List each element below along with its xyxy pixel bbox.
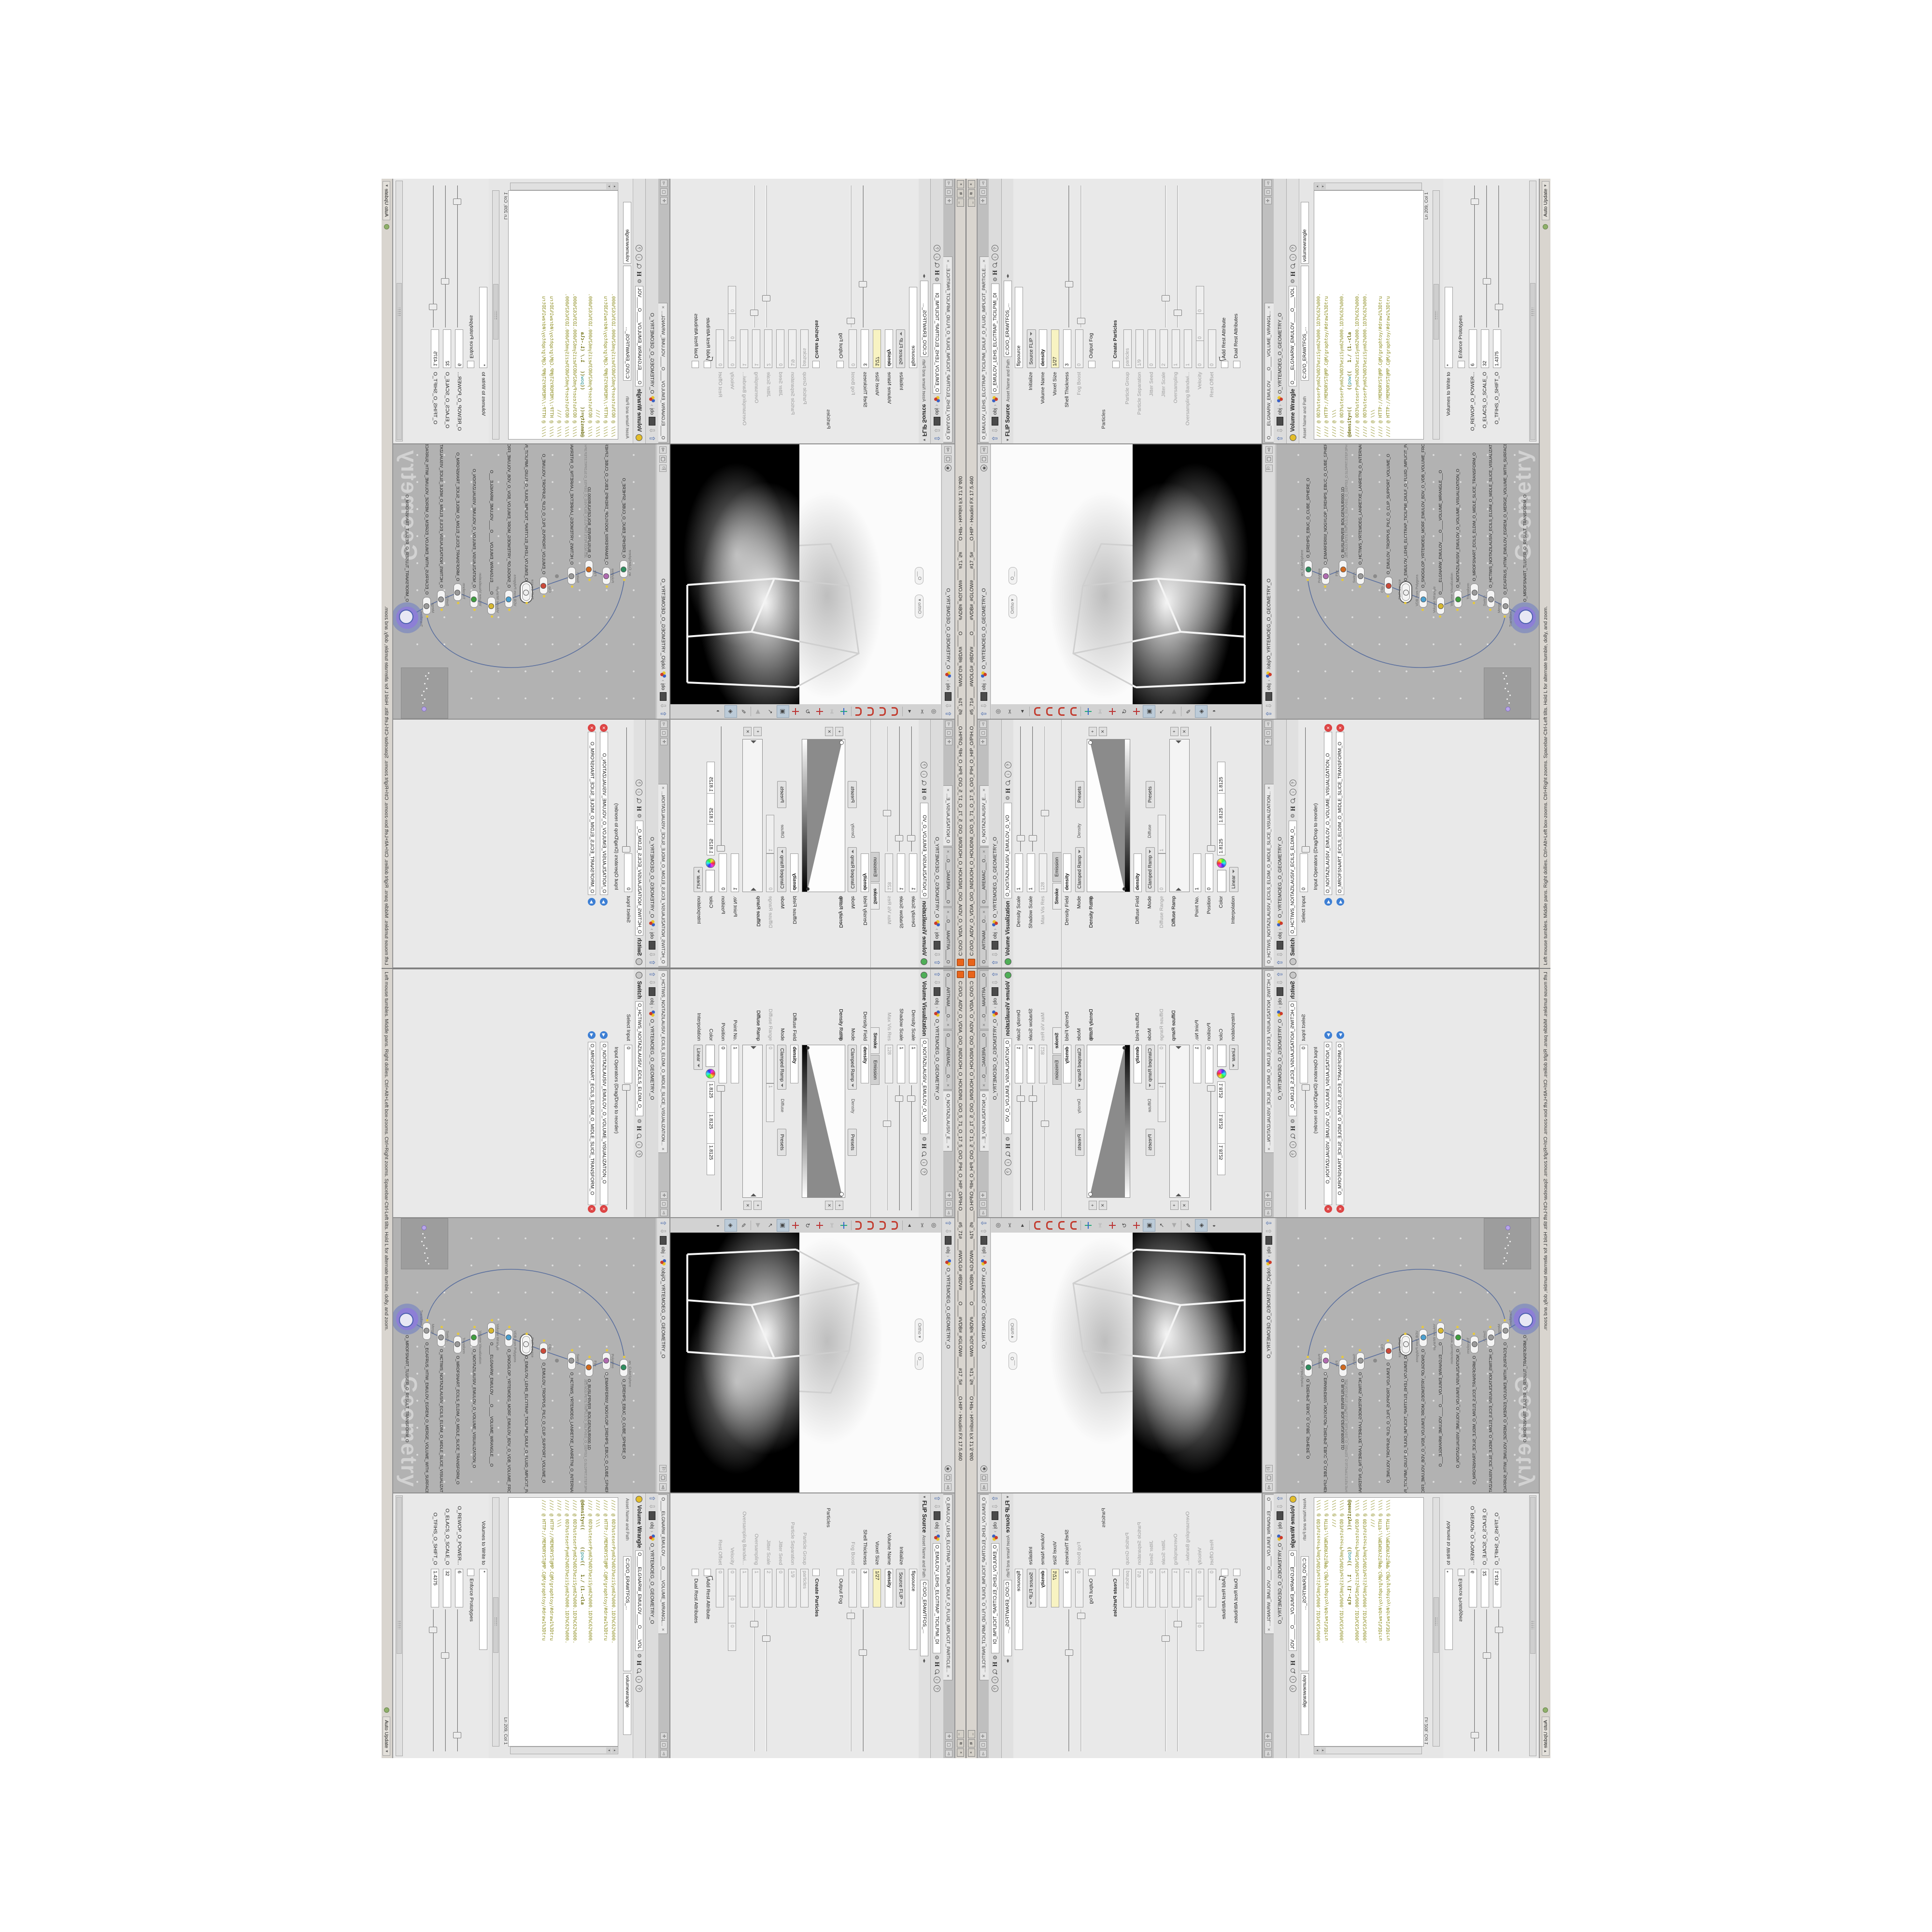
snap-edge-magnet-icon[interactable] [865, 1220, 877, 1231]
pane-type-icon[interactable] [934, 987, 940, 996]
scissors-icon[interactable]: ✄ [826, 706, 838, 717]
pane-maximize-icon[interactable]: ▢ [945, 1474, 952, 1481]
ramp-widget[interactable] [802, 739, 845, 892]
ramp-widget[interactable] [1169, 739, 1190, 892]
breadcrumb-root[interactable]: obj [649, 408, 655, 415]
tab-close-icon[interactable]: ✕ [980, 850, 989, 853]
param-value-field[interactable]: 0 [728, 286, 736, 314]
param-value-field[interactable]: 1 [909, 853, 917, 892]
param-checkbox[interactable] [1233, 361, 1240, 368]
param-value-field[interactable]: 1 [1027, 1045, 1035, 1083]
remove-input-icon[interactable]: ✕ [1324, 1205, 1332, 1213]
color-wheel-icon[interactable] [706, 858, 715, 868]
pane-tab[interactable]: O_NOITAZILAUSIV_E...✕ [943, 1091, 952, 1151]
param-value-field[interactable]: 1 [1193, 853, 1201, 892]
param-menu[interactable]: Linear [694, 867, 703, 892]
info-icon[interactable]: i [636, 1676, 643, 1683]
breadcrumb-root[interactable]: obj [1266, 683, 1272, 690]
minimize-button[interactable]: _ [968, 1730, 975, 1738]
pane-type-icon[interactable] [934, 417, 940, 426]
info-icon[interactable]: i [636, 1141, 643, 1148]
param-checkbox[interactable] [1221, 361, 1228, 368]
param-checkbox[interactable] [692, 361, 699, 368]
network-node[interactable]: Volume WrangleO____ELGNARW_EMULOV____O__… [1436, 597, 1445, 614]
ramp-key-start[interactable] [751, 885, 756, 891]
network-node[interactable]: VDB from PolygonsO_SNOGILOP_YRTEMOEG_MOR… [505, 1329, 513, 1347]
network-node[interactable]: ClipO_EMULOV_TROPPUS_PILC_O_CLIP_SUPPORT… [540, 1343, 548, 1360]
param-slider[interactable] [1165, 1609, 1166, 1751]
param-value-field[interactable]: 1.4375 [1493, 329, 1501, 368]
pane-collapse-icon[interactable]: ◅ [945, 1750, 952, 1757]
param-value-field[interactable]: density [1063, 853, 1071, 892]
pane-maximize-icon[interactable]: ▢ [1264, 188, 1272, 196]
snap-magnet-icon[interactable] [1031, 706, 1043, 717]
param-value-field[interactable]: 0 [728, 1623, 736, 1651]
help-icon[interactable]: ? [1005, 1168, 1011, 1175]
network-node[interactable]: an_CubeSphereO_EREHPS_EBUC_O_CUBE_SPHERE… [1304, 1359, 1312, 1377]
gear-icon[interactable]: ⚙ [1290, 813, 1296, 818]
param-slider[interactable] [1068, 1609, 1070, 1751]
nav-down-icon[interactable]: ⇩ [980, 703, 988, 709]
color-component-field[interactable]: 1.8125 [1217, 1112, 1225, 1144]
search-icon[interactable] [1005, 1151, 1011, 1157]
param-value-field[interactable]: 0 [1148, 1569, 1156, 1607]
pane-tab[interactable]: O____ELGNARW_EMULOV____O____VOLUME_WRANG… [658, 303, 668, 442]
nav-up-icon[interactable]: ⇧ [934, 971, 941, 978]
nav-up-icon[interactable]: ⇧ [1277, 971, 1284, 978]
pane-tab[interactable]: O____ARTNAM___O...✕ [943, 908, 952, 966]
network-node[interactable]: Volume VisualizationO_NOITAZILAUSIV_EMUL… [470, 1329, 478, 1347]
slider-knob[interactable] [1483, 278, 1491, 284]
breadcrumb-path[interactable]: O_YRTEMOEG_O_GEOMETRY_O [1277, 1019, 1283, 1100]
display-diamond-icon[interactable]: ◈ [1195, 1219, 1207, 1232]
pane-collapse-icon[interactable]: ◅ [980, 1209, 987, 1216]
ramp-add-icon[interactable]: + [1089, 727, 1097, 736]
ramp-key-start[interactable] [806, 887, 810, 891]
ramp-key-end[interactable] [1176, 1191, 1181, 1196]
select-arrow-icon[interactable]: ↖ [765, 1220, 776, 1231]
presets-button[interactable]: Presets [1146, 781, 1155, 808]
brush-icon[interactable]: ✎ [738, 706, 749, 717]
tab-close-icon[interactable]: ✕ [658, 1148, 667, 1151]
slider-knob[interactable] [1207, 845, 1215, 852]
snap-point-magnet-icon[interactable] [877, 706, 889, 717]
param-value-field[interactable]: 1 [731, 1045, 739, 1083]
param-value-field[interactable]: 3 [861, 329, 869, 368]
param-value-field[interactable]: 6 [455, 1569, 463, 1607]
snap-point-magnet-icon[interactable] [877, 1220, 889, 1231]
remove-input-icon[interactable]: ✕ [1336, 724, 1344, 732]
param-checkbox[interactable] [1458, 1569, 1465, 1576]
nav-down-icon[interactable]: ⇩ [992, 980, 999, 986]
param-slider[interactable] [910, 1085, 912, 1210]
reorder-arrow-icon[interactable]: ▶ [1324, 898, 1332, 906]
vex-code-editor[interactable]: //// @ 0D3%steserPym62%0D3%eziSym62%000.… [1314, 190, 1424, 440]
nav-down-icon[interactable]: ⇩ [992, 952, 999, 958]
nav-up-icon[interactable]: ⇧ [934, 435, 941, 441]
pane-maximize-icon[interactable]: ▢ [660, 729, 668, 737]
param-value-field[interactable]: density [861, 1045, 869, 1083]
param-value-field[interactable]: 1 [740, 329, 748, 368]
nav-up-icon[interactable]: ⇧ [980, 710, 988, 717]
snap-magnet-icon[interactable] [1031, 1220, 1043, 1231]
network-node[interactable]: Volume VisualizationO_NOITAZILAUSIV_EMUL… [470, 590, 478, 608]
slider-knob[interactable] [717, 845, 725, 852]
network-node[interactable]: ClipO_EMULOV_TROPPUS_PILC_O_CLIP_SUPPORT… [1384, 577, 1392, 594]
select-arrow-icon[interactable]: ↖ [1156, 706, 1167, 717]
breadcrumb-root[interactable]: obj [981, 683, 987, 690]
color-component-field[interactable]: 1.8125 [1217, 1143, 1225, 1175]
node-path-field[interactable]: O_EMULOV_LEHS_ELCITRAP_TICILPMI_DI [991, 284, 999, 394]
param-slider[interactable] [753, 1609, 755, 1751]
search-icon[interactable] [637, 1133, 642, 1139]
param-value-field[interactable]: 1 [1172, 1569, 1180, 1607]
nav-down-icon[interactable]: ⇩ [649, 980, 656, 986]
presets-button[interactable]: Presets [848, 1129, 857, 1156]
pane-split-icon[interactable]: ✛ [980, 1192, 987, 1199]
slider-knob[interactable] [750, 310, 758, 316]
param-value-field[interactable]: * [479, 287, 487, 368]
subtab-emission[interactable]: Emission [1052, 852, 1061, 882]
subtab-smoke[interactable]: Smoke [871, 1027, 880, 1054]
pane-collapse-icon[interactable]: ◅ [1264, 1209, 1272, 1216]
tab-close-icon[interactable]: ✕ [980, 788, 989, 792]
breadcrumb-path[interactable]: O_YRTEMOEG_O_GEOMETRY_O [992, 1019, 998, 1100]
param-value-field[interactable]: 0 [776, 1569, 784, 1607]
pane-collapse-icon[interactable]: ◅ [1264, 1750, 1272, 1757]
param-value-field[interactable]: 0 [1205, 1045, 1213, 1083]
node-name-field[interactable]: O____ELGNARW_EMULOV____O____VOL [1289, 1550, 1297, 1651]
slider-knob[interactable] [1162, 295, 1170, 301]
asset-path-field[interactable]: C:/O/O_ERAWTFOS_... [1004, 281, 1012, 357]
nav-down-icon[interactable]: ⇩ [980, 1228, 988, 1235]
gear-icon[interactable]: ⚙ [992, 277, 998, 282]
param-menu[interactable]: Clamped Ramp [777, 847, 786, 892]
nav-down-icon[interactable]: ⇩ [945, 703, 952, 709]
nav-up-icon[interactable]: ⇧ [649, 971, 656, 978]
ramp-mode-icons[interactable]: ▽⊞ [1088, 894, 1094, 907]
ramp-add-icon[interactable]: + [753, 1201, 762, 1210]
asset-path-field[interactable]: C:/O/O_ERAWTFOS_... [623, 1556, 631, 1671]
rotate-tool-icon[interactable]: ↻ [1119, 1220, 1130, 1231]
update-mode-selector[interactable]: Auto Update ▾ [1542, 1717, 1549, 1756]
tab-close-icon[interactable]: ✕ [1265, 1628, 1274, 1631]
breadcrumb-root[interactable]: obj [992, 998, 998, 1005]
param-value-field[interactable]: 0 [1158, 853, 1166, 892]
param-slider[interactable] [456, 1609, 458, 1751]
snap-edge-magnet-icon[interactable] [1055, 1220, 1067, 1231]
node-name-field[interactable]: O____ELGNARW_EMULOV____O____VOL [635, 1550, 643, 1651]
gear-icon[interactable]: ⚙ [636, 1119, 642, 1123]
param-value-field[interactable]: flipsource [909, 287, 917, 368]
asset-path-field[interactable]: C:/O/O_ERAWTFOS_... [1004, 1580, 1012, 1656]
param-slider[interactable] [886, 726, 888, 852]
axis-jack-icon[interactable] [1082, 1220, 1094, 1231]
pane-split-icon[interactable]: ✛ [980, 738, 987, 745]
param-menu[interactable]: Source FLIP [896, 1569, 905, 1607]
param-slider[interactable] [1080, 1609, 1082, 1751]
pan-hand-icon[interactable]: ✂ [916, 1220, 928, 1231]
slider-knob[interactable] [1302, 846, 1310, 852]
rotate-tool-icon[interactable]: ↻ [802, 1220, 813, 1231]
snap-grid-magnet-icon[interactable] [1067, 706, 1079, 717]
slider-knob[interactable] [859, 1649, 867, 1656]
breadcrumb-path[interactable]: O_YRTEMOEG_O_GEOMETRY_O [1277, 313, 1283, 394]
param-value-field[interactable]: 0 [1196, 1623, 1204, 1651]
param-value-field[interactable]: 0 [1196, 286, 1204, 314]
slider-knob[interactable] [762, 295, 770, 301]
pane-collapse-icon[interactable]: ◅ [945, 446, 952, 454]
tab-close-icon[interactable]: ✕ [943, 1023, 952, 1027]
param-slider[interactable] [850, 1609, 852, 1751]
param-value-field[interactable]: 1 [731, 853, 739, 892]
pane-split-icon[interactable]: ✛ [660, 1192, 668, 1199]
param-value-field[interactable]: 0 [719, 1045, 727, 1083]
slider-knob[interactable] [883, 810, 891, 816]
param-slider[interactable] [444, 1609, 446, 1751]
node-path-field[interactable]: O_EMULOV_LEHS_ELCITRAP_TICILPMI_DI [933, 284, 941, 394]
slider-knob[interactable] [1065, 1649, 1073, 1656]
param-value-field[interactable]: 1 [1193, 1045, 1201, 1083]
param-value-field[interactable]: 0 [1148, 329, 1156, 368]
pane-maximize-icon[interactable]: ▢ [945, 188, 952, 196]
param-value-field[interactable]: 1 [1015, 853, 1023, 892]
param-slider[interactable] [625, 727, 627, 852]
collapse-arrow-icon[interactable]: ◂ [904, 706, 916, 717]
pan-hand-icon[interactable]: ✂ [916, 706, 928, 717]
network-canvas[interactable]: Geometry an_CubeSphereO_EREHPS_EBUC_O_CU… [393, 1218, 656, 1492]
move-tool-icon[interactable] [1107, 706, 1118, 717]
pane-type-icon[interactable] [660, 1236, 667, 1245]
shade-sphere-icon[interactable]: ◑ [712, 706, 724, 717]
node-path-field[interactable]: O_EMULOV_LEHS_ELCITRAP_TICILPMI_DI [991, 1543, 999, 1653]
ramp-key-end[interactable] [1088, 740, 1093, 745]
play-icon[interactable]: ▶ [753, 706, 764, 717]
param-menu[interactable]: Linear [1229, 867, 1238, 892]
param-value-field[interactable]: 6 [455, 329, 463, 368]
nav-up-icon[interactable]: ⇧ [660, 710, 667, 717]
breadcrumb-root[interactable]: obj [934, 932, 940, 939]
network-node[interactable]: SwitchO_HCTIWS_YRTEMOEG_LANRETXE_LANRETN… [1356, 1352, 1364, 1370]
breadcrumb-root[interactable]: obj [981, 1247, 987, 1253]
play-icon[interactable]: ▶ [1168, 706, 1179, 717]
tab-close-icon[interactable]: ✕ [943, 910, 952, 914]
param-checkbox[interactable] [704, 361, 711, 368]
camera-target-icon[interactable]: ◉ [980, 1465, 987, 1472]
slider-knob[interactable] [1302, 1084, 1310, 1091]
network-path[interactable]: /obj/O_YRTEMOEG_O_GEOMETRY_O [1266, 1268, 1272, 1359]
breadcrumb-path[interactable]: O_YRTEMOEG_O_GEOMETRY_O [649, 837, 655, 918]
nav-down-icon[interactable]: ⇩ [934, 952, 941, 958]
help-icon[interactable]: ? [636, 1151, 643, 1157]
presets-button[interactable]: Presets [777, 1129, 786, 1156]
pane-hscrollbar[interactable] [396, 181, 403, 441]
param-value-field[interactable]: 1 [752, 1569, 760, 1607]
network-node[interactable]: FileO_BUSLPRVER_BOLGENJUR000.1DJE0.NO3.P… [1339, 560, 1347, 578]
nav-up-icon[interactable]: ⇧ [945, 710, 952, 717]
param-menu[interactable]: Source FLIP [1027, 1569, 1036, 1607]
param-value-field[interactable]: 0 [1196, 340, 1204, 368]
search-icon[interactable] [1290, 1133, 1296, 1139]
param-slider[interactable] [1165, 185, 1166, 327]
param-slider[interactable] [625, 1085, 627, 1209]
color-component-field[interactable]: 1.8125 [707, 824, 715, 855]
breadcrumb-path[interactable]: O_YRTEMOEG_O_GEOMETRY_O [649, 313, 655, 394]
node-name-field[interactable]: O_NOITAZILAUSIV_EMULOV_O_VO [1004, 1038, 1012, 1134]
input-operator-field[interactable]: O_MROFSNART_ECILS_ELDIM_O_MIDLE_SLICE_TR… [1336, 732, 1344, 895]
ramp-key-start[interactable] [1122, 1046, 1126, 1050]
color-component-field[interactable]: 1.8125 [1217, 793, 1225, 824]
network-node[interactable]: SwitchO_HCTIWS_YRTEMOEG_LANRETXE_LANRETN… [568, 1352, 576, 1370]
param-slider[interactable] [1032, 1085, 1034, 1210]
snap-point-magnet-icon[interactable] [1043, 1220, 1055, 1231]
brush-icon[interactable]: ✎ [1183, 1220, 1194, 1231]
nav-up-icon[interactable]: ⇧ [992, 1495, 999, 1502]
nav-down-icon[interactable]: ⇩ [1277, 427, 1284, 434]
ramp-mode-icons[interactable]: ▽⊞ [838, 894, 844, 907]
color-wheel-icon[interactable] [706, 1069, 715, 1079]
node-name-field[interactable]: O_HCTIWS_NOITAZILAUSIV_ECILS_ELDIM_O_ [1289, 821, 1297, 936]
pane-type-icon[interactable] [660, 692, 667, 701]
param-checkbox[interactable] [837, 1569, 844, 1576]
ramp-add-icon[interactable]: + [835, 727, 843, 736]
pane-type-icon[interactable] [992, 941, 998, 950]
pin-icon[interactable]: ⚐ [1265, 1465, 1273, 1472]
scissors-icon[interactable]: ✄ [826, 1220, 838, 1231]
param-slider[interactable] [720, 1085, 722, 1210]
param-slider[interactable] [1305, 1085, 1307, 1209]
code-vscrollbar[interactable]: ▴▾ [510, 183, 618, 190]
info-icon[interactable]: i [1290, 254, 1296, 261]
pane-tab[interactable]: O____ARTNAM___O...✕ [943, 970, 952, 1029]
nav-up-icon[interactable]: ⇧ [1277, 435, 1284, 441]
pane-tab[interactable]: O_HCTIWS_NOITAZILAUSIV_ECILS_ELDIM_O_MID… [1264, 784, 1274, 966]
pane-tab[interactable]: O____ELGNARW_EMULOV____O____VOLUME_WRANG… [658, 1494, 668, 1634]
slider-knob[interactable] [1065, 281, 1073, 287]
param-value-field[interactable]: 0 [1158, 1045, 1166, 1083]
nav-down-icon[interactable]: ⇩ [649, 952, 656, 958]
close-button[interactable]: × [968, 180, 975, 188]
snap-grid-magnet-icon[interactable] [853, 706, 865, 717]
breadcrumb-root[interactable]: obj [934, 1522, 940, 1529]
input-operator-field[interactable]: O_MROFSNART_ECILS_ELDIM_O_MIDLE_SLICE_TR… [1336, 1042, 1344, 1205]
breadcrumb-root[interactable]: obj [992, 408, 998, 415]
breadcrumb-path[interactable]: O_YRTEMOEG_O_GEOMETRY_O [1277, 837, 1283, 918]
param-value-field[interactable]: 1/9 [1136, 1569, 1144, 1607]
param-value-field2[interactable]: 1 [766, 815, 774, 853]
code-hscrollbar[interactable] [492, 190, 499, 440]
param-value-field[interactable]: density [1134, 853, 1142, 892]
pane-split-icon[interactable]: ✛ [1264, 1733, 1272, 1740]
gear-icon[interactable]: ⚙ [992, 1655, 998, 1660]
scale-tool-icon[interactable] [1131, 1220, 1142, 1231]
param-slider[interactable] [432, 1609, 434, 1751]
param-value-field[interactable]: flipsource [909, 1569, 917, 1650]
tab-close-icon[interactable]: ✕ [980, 259, 989, 263]
slider-knob[interactable] [895, 835, 903, 841]
move-tool-icon[interactable] [1107, 1220, 1118, 1231]
slider-knob[interactable] [622, 1084, 630, 1091]
camera-target-icon[interactable]: ◉ [945, 465, 952, 471]
param-value-field[interactable]: 128 [1039, 1045, 1047, 1083]
node-path-field[interactable]: O_EMULOV_LEHS_ELCITRAP_TICILPMI_DI [933, 1543, 941, 1653]
slider-knob[interactable] [895, 1095, 903, 1102]
network-node[interactable]: ClipO_EMULOV_TROPPUS_PILC_O_CLIP_SUPPORT… [1384, 1343, 1392, 1360]
vex-code-editor[interactable]: //// @ 0D3%steserPym62%0D3%eziSym62%000.… [508, 1497, 618, 1747]
move-tool-icon[interactable] [814, 1220, 825, 1231]
info-icon[interactable]: i [992, 254, 998, 260]
nav-down-icon[interactable]: ⇩ [945, 1228, 952, 1235]
pane-maximize-icon[interactable]: ▢ [945, 729, 952, 737]
help-icon[interactable]: ? [636, 245, 643, 252]
gear-icon[interactable]: ⚙ [636, 279, 642, 284]
nav-down-icon[interactable]: ⇩ [1277, 952, 1284, 958]
brush-icon[interactable]: ✎ [1183, 706, 1194, 717]
tab-close-icon[interactable]: ✕ [943, 788, 952, 792]
search-icon[interactable] [637, 1668, 642, 1674]
pane-split-icon[interactable]: ✛ [1264, 1192, 1272, 1199]
param-value-field[interactable]: 1/27 [1051, 329, 1059, 368]
pane-maximize-icon[interactable]: ▢ [980, 729, 987, 737]
gear-icon[interactable]: ⚙ [636, 1653, 642, 1658]
slider-knob[interactable] [1041, 810, 1049, 816]
param-slider[interactable] [444, 185, 446, 327]
tab-close-icon[interactable]: ✕ [943, 1084, 952, 1087]
param-value-field[interactable]: 1 [1184, 329, 1192, 368]
slider-knob[interactable] [1077, 1613, 1085, 1619]
param-value-field[interactable]: 1.4375 [1493, 1569, 1501, 1607]
slider-knob[interactable] [1495, 1627, 1503, 1633]
param-value-field[interactable]: 0 [624, 853, 632, 892]
pane-split-icon[interactable]: ✛ [660, 1733, 668, 1740]
help-icon[interactable]: ? [1290, 245, 1296, 252]
param-menu[interactable]: Clamped Ramp [1146, 1045, 1155, 1090]
param-menu[interactable]: Clamped Ramp [1075, 1045, 1084, 1090]
slider-knob[interactable] [1029, 835, 1037, 841]
network-node[interactable]: SwitchO_HCTIWS_YRTEMOEG_LANRETXE_LANRETN… [568, 567, 576, 584]
minimize-button[interactable]: _ [957, 199, 964, 207]
param-value-field[interactable]: 1/27 [873, 1569, 881, 1607]
breadcrumb-path[interactable]: O_YRTEMOEG_O_GEOMETRY_O [649, 1019, 655, 1100]
restore-button[interactable]: ⧉ [968, 1739, 975, 1747]
param-value-field[interactable]: 1 [1015, 1045, 1023, 1083]
param-value-field[interactable]: 32 [443, 1569, 451, 1607]
pane-type-icon[interactable] [649, 941, 655, 950]
network-node[interactable]: TransformO_MROFSNART_ECILS_ELDIM_O_MIDLE… [454, 1336, 462, 1353]
param-slider[interactable] [1210, 726, 1212, 852]
shade-sphere-icon[interactable]: ◑ [1208, 1220, 1220, 1231]
ramp-key-start[interactable] [751, 1046, 756, 1052]
pane-type-icon[interactable] [934, 1511, 940, 1520]
pane-tab[interactable]: O_NOITAZILAUSIV_E...✕ [980, 785, 989, 846]
snap-grid-magnet-icon[interactable] [853, 1220, 865, 1231]
pane-tab[interactable]: O____ELGNARW_EMULOV____O____VOLUME_WRANG… [1264, 303, 1274, 442]
ramp-add-icon[interactable]: + [753, 727, 762, 736]
pane-collapse-icon[interactable]: ◅ [980, 1750, 987, 1757]
slider-knob[interactable] [1174, 1621, 1182, 1627]
pane-maximize-icon[interactable]: ▢ [980, 188, 987, 196]
search-icon[interactable] [922, 1151, 927, 1157]
param-value-field[interactable]: 0 [849, 329, 857, 368]
param-value-field[interactable]: 0 [1300, 853, 1308, 892]
color-swatch[interactable] [1217, 870, 1226, 892]
subtab-emission[interactable]: Emission [871, 1055, 880, 1085]
param-value-field[interactable]: 1.4375 [431, 1569, 439, 1607]
pane-maximize-icon[interactable]: ▢ [945, 455, 952, 463]
restore-button[interactable]: ⧉ [957, 189, 964, 198]
param-slider[interactable] [1020, 1085, 1022, 1210]
slider-knob[interactable] [750, 1621, 758, 1627]
